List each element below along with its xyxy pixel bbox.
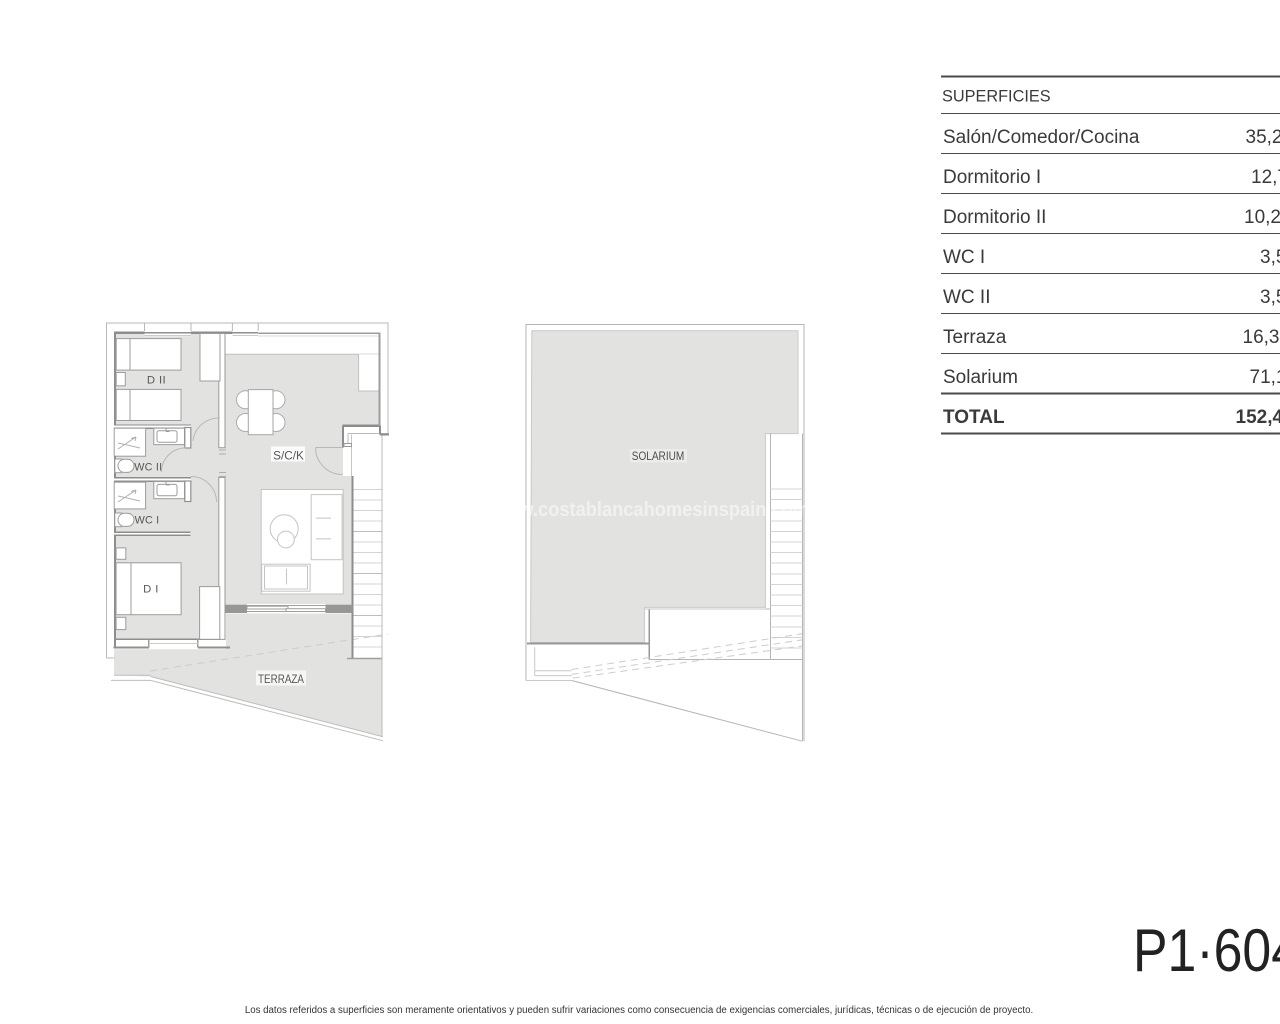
svg-text:Dormitorio II: Dormitorio II (943, 207, 1046, 228)
svg-text:WC I: WC I (943, 247, 985, 268)
svg-text:Salón/Comedor/Cocina: Salón/Comedor/Cocina (943, 127, 1140, 148)
svg-text:D I: D I (143, 583, 159, 595)
svg-text:TERRAZA: TERRAZA (258, 672, 305, 686)
svg-text:16,30: 16,30 (1243, 327, 1280, 348)
svg-text:152,45: 152,45 (1236, 407, 1280, 428)
svg-text:SOLARIUM: SOLARIUM (632, 451, 685, 463)
svg-text:71,15: 71,15 (1250, 367, 1280, 388)
svg-text:3,50: 3,50 (1260, 287, 1280, 308)
svg-text:D II: D II (147, 375, 166, 387)
svg-text:WC I: WC I (135, 515, 160, 527)
svg-text:S/C/K: S/C/K (273, 449, 304, 463)
svg-text:TOTAL: TOTAL (943, 407, 1005, 428)
svg-text:35,25: 35,25 (1246, 127, 1280, 148)
svg-text:SUPERFICIES: SUPERFICIES (942, 88, 1051, 106)
svg-text:3,50: 3,50 (1260, 247, 1280, 268)
svg-text:P1·604: P1·604 (1133, 917, 1280, 984)
svg-text:www.costablancahomesinspain.co: www.costablancahomesinspain.com (490, 499, 809, 521)
svg-text:Los datos referidos a superfic: Los datos referidos a superficies son me… (245, 1005, 1033, 1016)
svg-text:WC II: WC II (943, 287, 991, 308)
svg-text:Terraza: Terraza (943, 327, 1007, 348)
svg-text:Solarium: Solarium (943, 367, 1018, 388)
svg-text:12,75: 12,75 (1251, 167, 1280, 188)
svg-text:10,25: 10,25 (1244, 207, 1280, 228)
svg-text:Dormitorio I: Dormitorio I (943, 167, 1041, 188)
svg-text:WC II: WC II (134, 462, 162, 474)
